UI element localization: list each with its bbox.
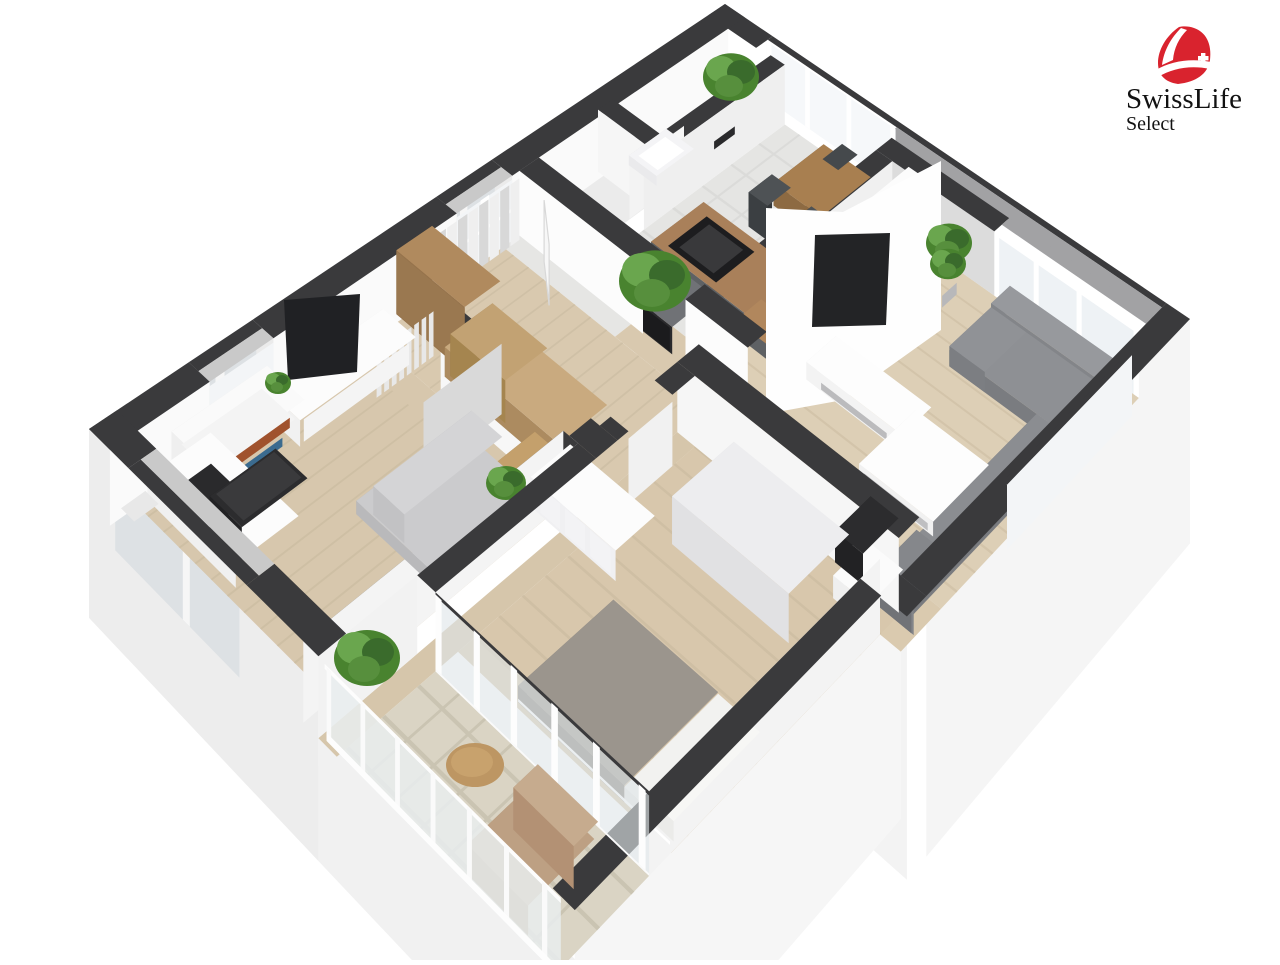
svg-text:Select: Select: [1126, 113, 1175, 135]
svg-text:SwissLife: SwissLife: [1126, 83, 1242, 115]
